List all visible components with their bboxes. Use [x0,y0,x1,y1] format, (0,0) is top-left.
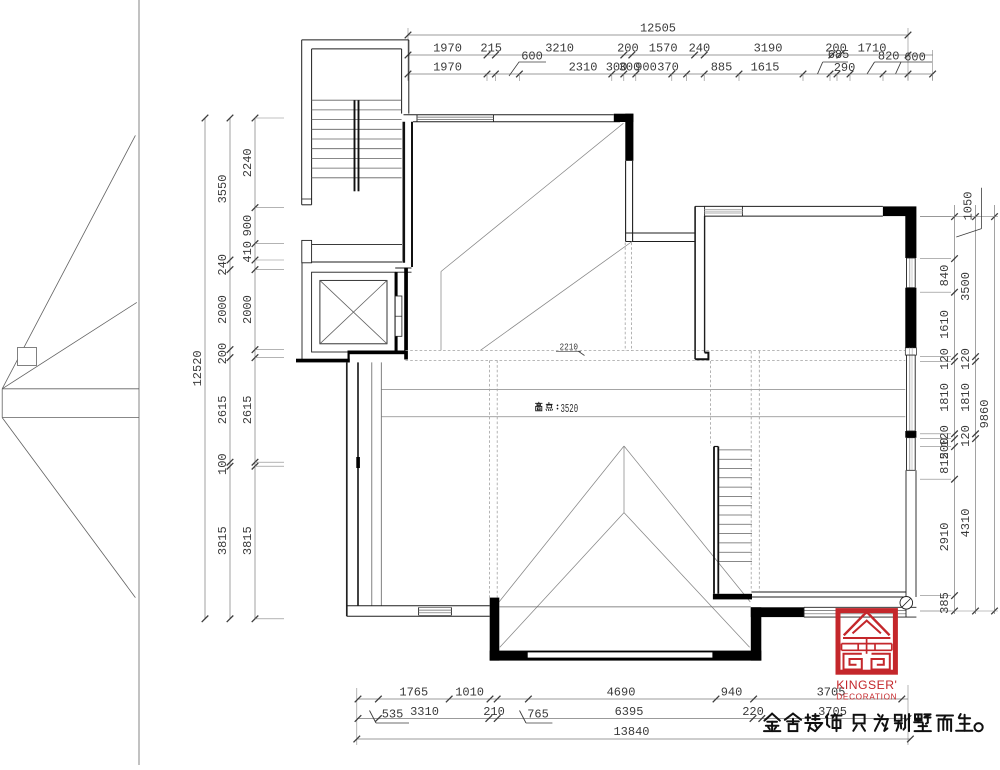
svg-text:840: 840 [938,265,952,287]
svg-text:KINGSER': KINGSER' [836,678,897,692]
svg-text:1970: 1970 [433,61,462,75]
svg-text:240: 240 [216,254,230,276]
svg-text:3815: 3815 [241,526,255,555]
svg-text:535: 535 [382,708,404,722]
svg-text:2615: 2615 [216,395,230,424]
svg-text:385: 385 [938,592,952,614]
svg-text:3190: 3190 [754,42,783,56]
svg-text:765: 765 [527,708,549,722]
svg-text:12520: 12520 [191,350,205,386]
svg-text:120: 120 [959,425,973,447]
svg-text:210: 210 [483,705,505,719]
svg-text:DECORATION: DECORATION [836,693,897,702]
svg-text:9860: 9860 [978,400,992,429]
svg-text:2310: 2310 [569,61,598,75]
svg-text:6395: 6395 [615,705,644,719]
svg-text:12505: 12505 [640,22,676,36]
svg-text:215: 215 [480,42,502,56]
svg-text:1570: 1570 [649,42,678,56]
svg-text:900: 900 [241,215,255,237]
svg-text:1970: 1970 [433,42,462,56]
svg-text:1610: 1610 [938,310,952,339]
svg-text:100: 100 [216,453,230,475]
svg-text:290: 290 [834,61,856,75]
svg-text:1615: 1615 [751,61,780,75]
svg-text:1765: 1765 [399,686,428,700]
svg-text:1810: 1810 [959,383,973,412]
svg-text:240: 240 [689,42,711,56]
svg-text:2000: 2000 [216,295,230,324]
svg-text:2000: 2000 [241,295,255,324]
svg-text:2210: 2210 [560,341,579,352]
svg-text:4690: 4690 [607,686,636,700]
svg-text:3500: 3500 [959,272,973,301]
svg-text:3550: 3550 [216,175,230,204]
svg-text:2910: 2910 [938,523,952,552]
svg-text:200: 200 [617,42,639,56]
svg-text:3520: 3520 [561,402,579,416]
svg-text:200: 200 [216,343,230,365]
svg-text:410: 410 [241,241,255,263]
svg-text:1050: 1050 [962,192,976,221]
svg-text:3815: 3815 [216,526,230,555]
svg-text:820: 820 [878,50,900,64]
svg-text:120: 120 [959,348,973,370]
svg-text:4310: 4310 [959,509,973,538]
svg-text:900: 900 [635,61,657,75]
svg-text:370: 370 [657,61,679,75]
svg-text:3210: 3210 [545,42,574,56]
svg-text:600: 600 [521,50,543,64]
svg-text:1010: 1010 [455,686,484,700]
svg-text:120: 120 [938,348,952,370]
svg-text:1810: 1810 [938,383,952,412]
svg-text:3310: 3310 [410,705,439,719]
svg-text:940: 940 [721,686,743,700]
svg-text:815: 815 [938,452,952,474]
svg-text:2240: 2240 [241,148,255,177]
svg-text:2615: 2615 [241,395,255,424]
svg-text:13840: 13840 [613,725,649,739]
svg-text:885: 885 [711,61,733,75]
svg-text:220: 220 [742,705,764,719]
